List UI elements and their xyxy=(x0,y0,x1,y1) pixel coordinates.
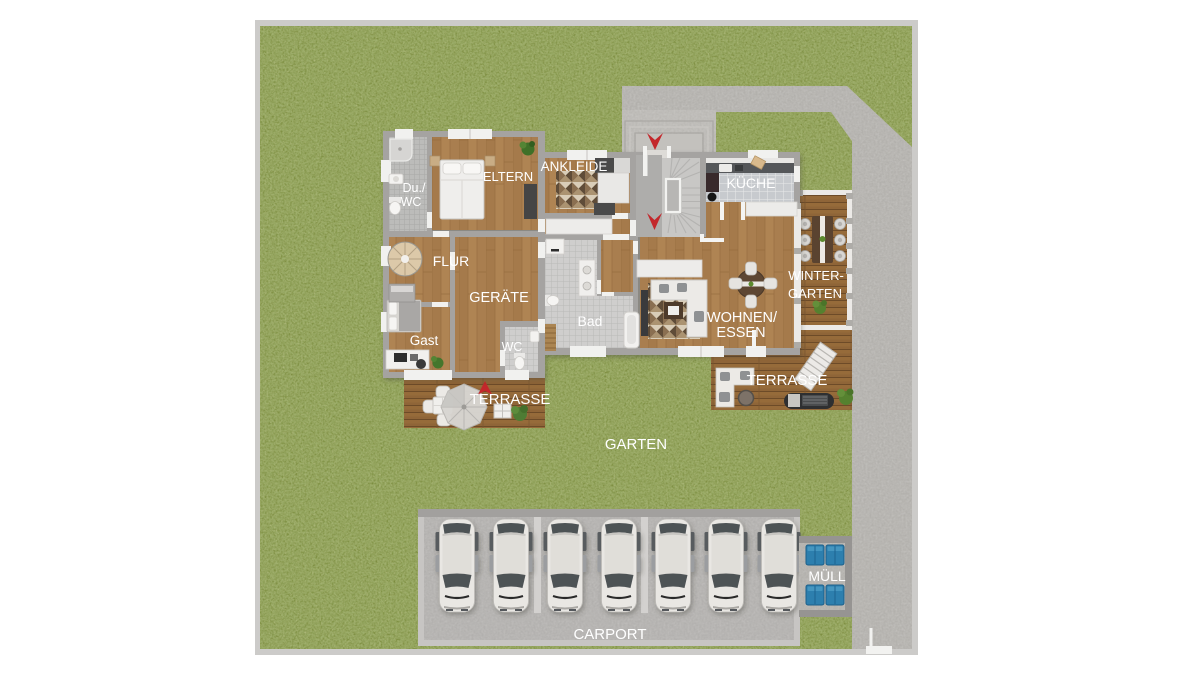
svg-text:GARTEN: GARTEN xyxy=(605,436,667,453)
svg-text:TERRASSE: TERRASSE xyxy=(470,391,551,408)
svg-text:GERÄTE: GERÄTE xyxy=(469,289,529,306)
svg-text:WC: WC xyxy=(502,340,523,354)
svg-text:GARTEN: GARTEN xyxy=(788,286,842,301)
svg-text:ESSEN: ESSEN xyxy=(716,325,765,341)
svg-text:FLUR: FLUR xyxy=(433,253,470,269)
svg-text:WOHNEN/: WOHNEN/ xyxy=(707,310,778,326)
svg-text:Du./: Du./ xyxy=(403,181,426,195)
svg-text:WINTER-: WINTER- xyxy=(788,268,844,283)
svg-text:KÜCHE: KÜCHE xyxy=(726,174,775,191)
svg-text:WC: WC xyxy=(401,195,422,209)
svg-text:Gast: Gast xyxy=(410,333,439,348)
svg-text:Bad: Bad xyxy=(578,313,603,329)
svg-text:CARPORT: CARPORT xyxy=(573,626,646,643)
svg-text:TERRASSE: TERRASSE xyxy=(747,372,828,389)
svg-text:MÜLL: MÜLL xyxy=(808,567,846,584)
svg-text:ANKLEIDE: ANKLEIDE xyxy=(541,159,608,174)
svg-text:ELTERN: ELTERN xyxy=(483,169,533,184)
